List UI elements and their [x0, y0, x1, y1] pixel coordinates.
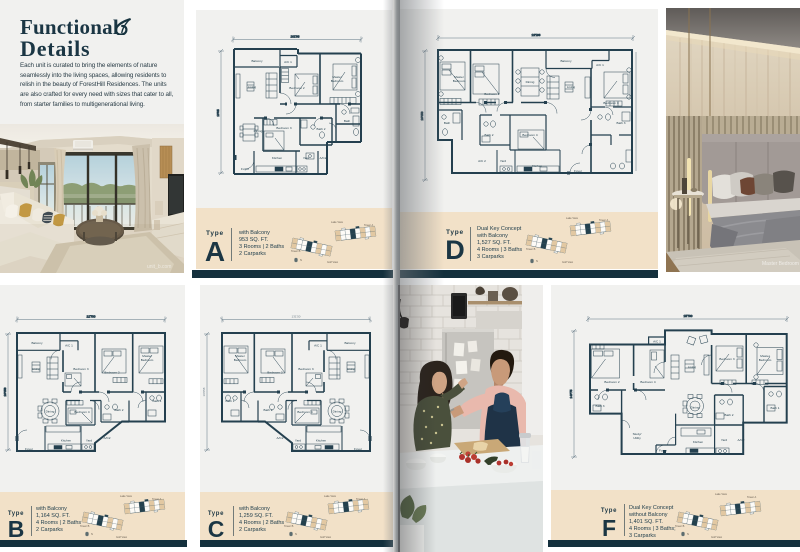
svg-text:F: F [602, 515, 616, 541]
svg-text:Tower B: Tower B [675, 524, 685, 528]
svg-text:Golf View: Golf View [327, 260, 338, 264]
svg-text:B: B [8, 516, 25, 542]
svg-text:1,527 SQ. FT.: 1,527 SQ. FT. [477, 240, 511, 246]
svg-text:4 Rooms | 3 Baths;: 4 Rooms | 3 Baths; [629, 526, 676, 532]
svg-text:Tower A: Tower A [152, 497, 161, 501]
svg-text:3 Carparks: 3 Carparks [629, 533, 656, 539]
svg-text:Lake View: Lake View [324, 494, 336, 498]
svg-text:Tower A: Tower A [599, 218, 608, 222]
svg-text:N: N [687, 532, 689, 536]
svg-text:Tower A: Tower A [747, 495, 756, 499]
svg-text:with Balcony: with Balcony [476, 233, 508, 239]
svg-text:Tower A: Tower A [364, 223, 373, 227]
svg-text:1,164 SQ. FT.: 1,164 SQ. FT. [36, 513, 70, 519]
svg-text:4 Rooms | 2 Baths: 4 Rooms | 2 Baths [36, 520, 81, 526]
svg-text:N: N [91, 532, 93, 536]
svg-text:Lake View: Lake View [566, 216, 578, 220]
svg-text:Golf View: Golf View [711, 535, 722, 539]
svg-text:C: C [208, 516, 225, 542]
svg-text:A: A [205, 236, 225, 267]
svg-text:Lake View: Lake View [715, 492, 727, 496]
svg-text:Tower A: Tower A [356, 497, 365, 501]
svg-text:4 Rooms | 3 Baths: 4 Rooms | 3 Baths [477, 247, 522, 253]
svg-text:unit_b.com: unit_b.com [147, 264, 171, 270]
svg-text:Dual Key Concept: Dual Key Concept [477, 226, 522, 232]
svg-text:with Balcony: with Balcony [238, 506, 270, 512]
svg-text:Tower B: Tower B [291, 249, 301, 253]
svg-text:D: D [445, 235, 465, 265]
svg-text:Golf View: Golf View [320, 535, 331, 539]
svg-text:Master Bedroom: Master Bedroom [762, 261, 799, 267]
svg-text:1,401 SQ. FT.: 1,401 SQ. FT. [629, 519, 663, 525]
svg-text:Tower B: Tower B [80, 524, 90, 528]
svg-text:2 Carparks: 2 Carparks [239, 527, 266, 533]
svg-text:1,259 SQ. FT.: 1,259 SQ. FT. [239, 513, 273, 519]
svg-text:Type: Type [601, 508, 617, 514]
svg-text:2 Carparks: 2 Carparks [239, 251, 266, 257]
svg-text:Dual Key Concept: Dual Key Concept [629, 505, 674, 511]
svg-text:3 Rooms | 2 Baths: 3 Rooms | 2 Baths [239, 244, 284, 250]
svg-text:N: N [536, 259, 538, 263]
svg-text:953 SQ. FT.: 953 SQ. FT. [239, 237, 269, 243]
svg-text:3 Carparks: 3 Carparks [477, 254, 504, 260]
svg-text:with Balcony: with Balcony [238, 230, 270, 236]
svg-text:2 Carparks: 2 Carparks [36, 527, 63, 533]
svg-text:N: N [300, 258, 302, 262]
svg-text:Golf View: Golf View [562, 260, 573, 264]
svg-text:Tower B: Tower B [526, 247, 536, 251]
svg-text:4 Rooms | 2 Baths: 4 Rooms | 2 Baths [239, 520, 284, 526]
svg-text:Tower B: Tower B [284, 524, 294, 528]
svg-text:Lake View: Lake View [120, 494, 132, 498]
svg-text:with Balcony: with Balcony [35, 506, 67, 512]
svg-text:Lake View: Lake View [331, 220, 343, 224]
svg-text:Golf View: Golf View [116, 535, 127, 539]
svg-text:without Balcony: without Balcony [628, 512, 668, 518]
svg-text:N: N [295, 532, 297, 536]
